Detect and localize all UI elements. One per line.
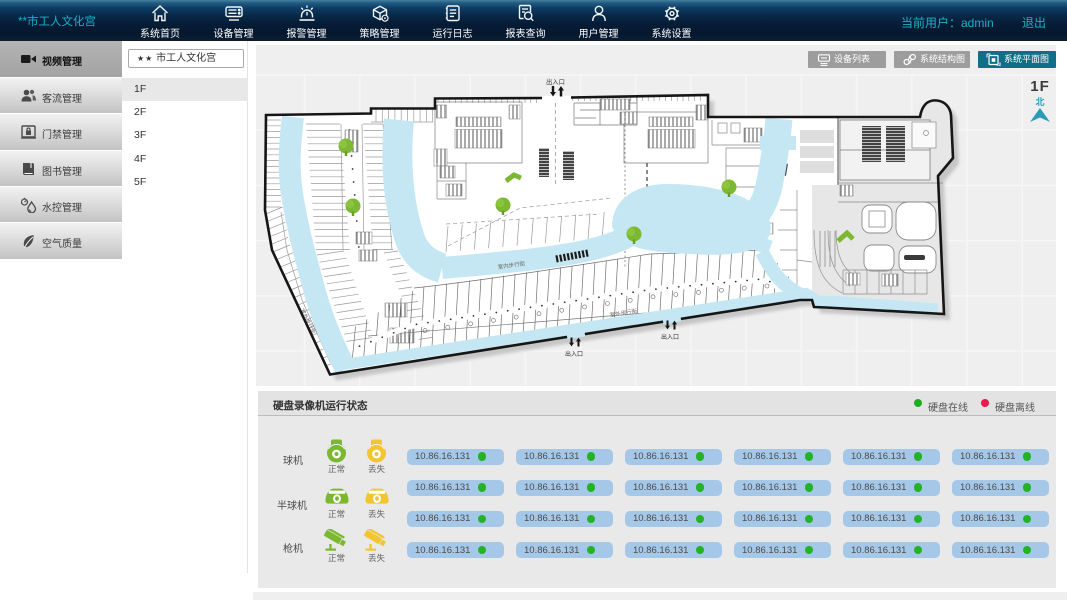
svg-text:出入口: 出入口 [546,77,565,86]
svg-text:出入口: 出入口 [661,333,679,341]
svg-text:出入口: 出入口 [565,350,583,358]
